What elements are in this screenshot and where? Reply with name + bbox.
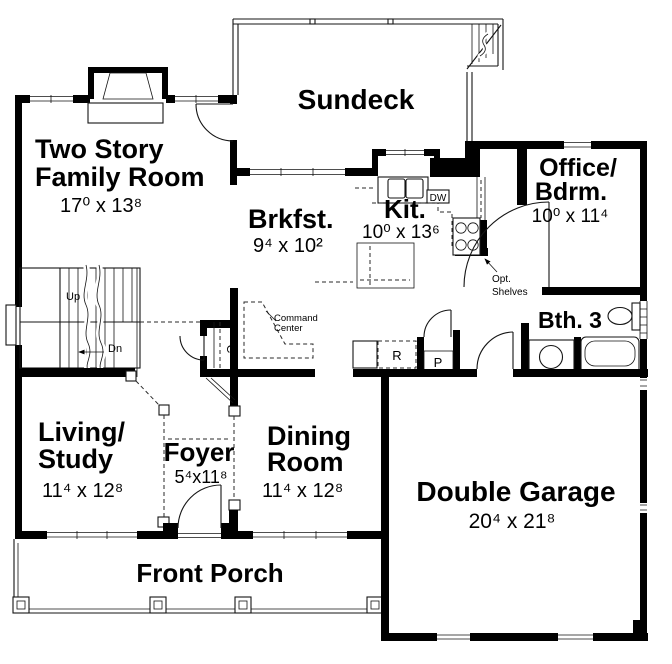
sundeck-deck-rails: [233, 19, 503, 141]
toilet-tank: [632, 303, 640, 330]
dims-garage: 20⁴ x 21⁸: [469, 510, 556, 533]
porch-column: [13, 597, 29, 613]
bath-sink-basin: [540, 346, 563, 369]
label-closet: C: [224, 345, 238, 354]
porch-column: [235, 597, 251, 613]
dims-kitchen: 10⁰ x 13⁶: [362, 222, 440, 243]
label-stairs-up: Up: [66, 291, 80, 303]
fireplace-hearth: [88, 103, 163, 123]
hall-pantry: [353, 310, 648, 377]
family-room-windows: [6, 95, 218, 345]
label-sundeck: Sundeck: [298, 84, 415, 115]
family-sundeck-door: [196, 104, 233, 141]
label-family-line2: Family Room: [35, 162, 205, 192]
dining-window: [253, 531, 347, 539]
pantry-door: [424, 310, 451, 337]
label-opt-shelves-line2: Shelves: [492, 287, 528, 298]
label-living-line1: Living/: [38, 417, 125, 447]
floor-plan-drawing: Sundeck Two Story Family Room 17⁰ x 13⁸ …: [0, 0, 672, 664]
kitchen-island: [357, 243, 414, 288]
garage-walls: [381, 377, 648, 641]
label-command-center-line2: Center: [274, 323, 303, 334]
label-office-line2: Bdrm.: [535, 178, 607, 206]
living-window: [47, 531, 137, 539]
label-living-line2: Study: [38, 444, 113, 474]
dims-living: 11⁴ x 12⁸: [42, 480, 123, 502]
dims-office: 10⁰ x 11⁴: [532, 206, 609, 227]
optional-shelves-lines: [477, 177, 485, 220]
label-opt-shelves-line1: Opt.: [492, 274, 511, 285]
column: [126, 371, 136, 381]
label-breakfast: Brkfst.: [248, 204, 334, 234]
dims-breakfast: 9⁴ x 10²: [253, 235, 323, 257]
label-dining-line2: Room: [267, 447, 344, 477]
fireplace: [88, 70, 165, 123]
label-pantry: P: [434, 355, 443, 370]
label-bath3: Bth. 3: [538, 307, 602, 333]
label-dishwasher: DW: [430, 193, 447, 204]
kitchen-sink-window: [386, 149, 424, 156]
label-front-porch: Front Porch: [136, 558, 283, 588]
stair-landing-window: [6, 305, 16, 345]
column: [229, 406, 240, 416]
deck-stairs: [467, 19, 503, 70]
porch-column: [367, 597, 383, 613]
deck-rail-post: [310, 19, 315, 24]
deck-rail-post: [388, 19, 393, 24]
label-kitchen: Kit.: [384, 194, 426, 224]
label-foyer: Foyer: [164, 437, 235, 467]
hall-cabinet: [353, 341, 377, 368]
column: [229, 500, 240, 510]
front-door: [178, 485, 221, 528]
optional-shelves-arrow: [485, 259, 497, 272]
main-stairs: [20, 265, 200, 377]
breakfast-window: [250, 168, 345, 176]
label-family-line1: Two Story: [35, 134, 164, 164]
office-window: [564, 143, 591, 148]
label-stairs-down: Dn: [108, 343, 122, 355]
bathtub-inner: [585, 341, 635, 366]
dims-foyer: 5⁴x11⁸: [174, 467, 227, 487]
label-garage: Double Garage: [416, 476, 615, 507]
garage-entry-door: [477, 332, 513, 369]
label-refrigerator: R: [392, 348, 401, 363]
floor-plan-page: Sundeck Two Story Family Room 17⁰ x 13⁸ …: [0, 0, 672, 664]
porch-column: [150, 597, 166, 613]
column: [159, 405, 169, 415]
dims-dining: 11⁴ x 12⁸: [262, 480, 343, 502]
dims-family: 17⁰ x 13⁸: [60, 195, 142, 217]
bath-window: [640, 301, 647, 339]
labels: Sundeck Two Story Family Room 17⁰ x 13⁸ …: [35, 84, 617, 588]
toilet-bowl: [608, 308, 632, 325]
